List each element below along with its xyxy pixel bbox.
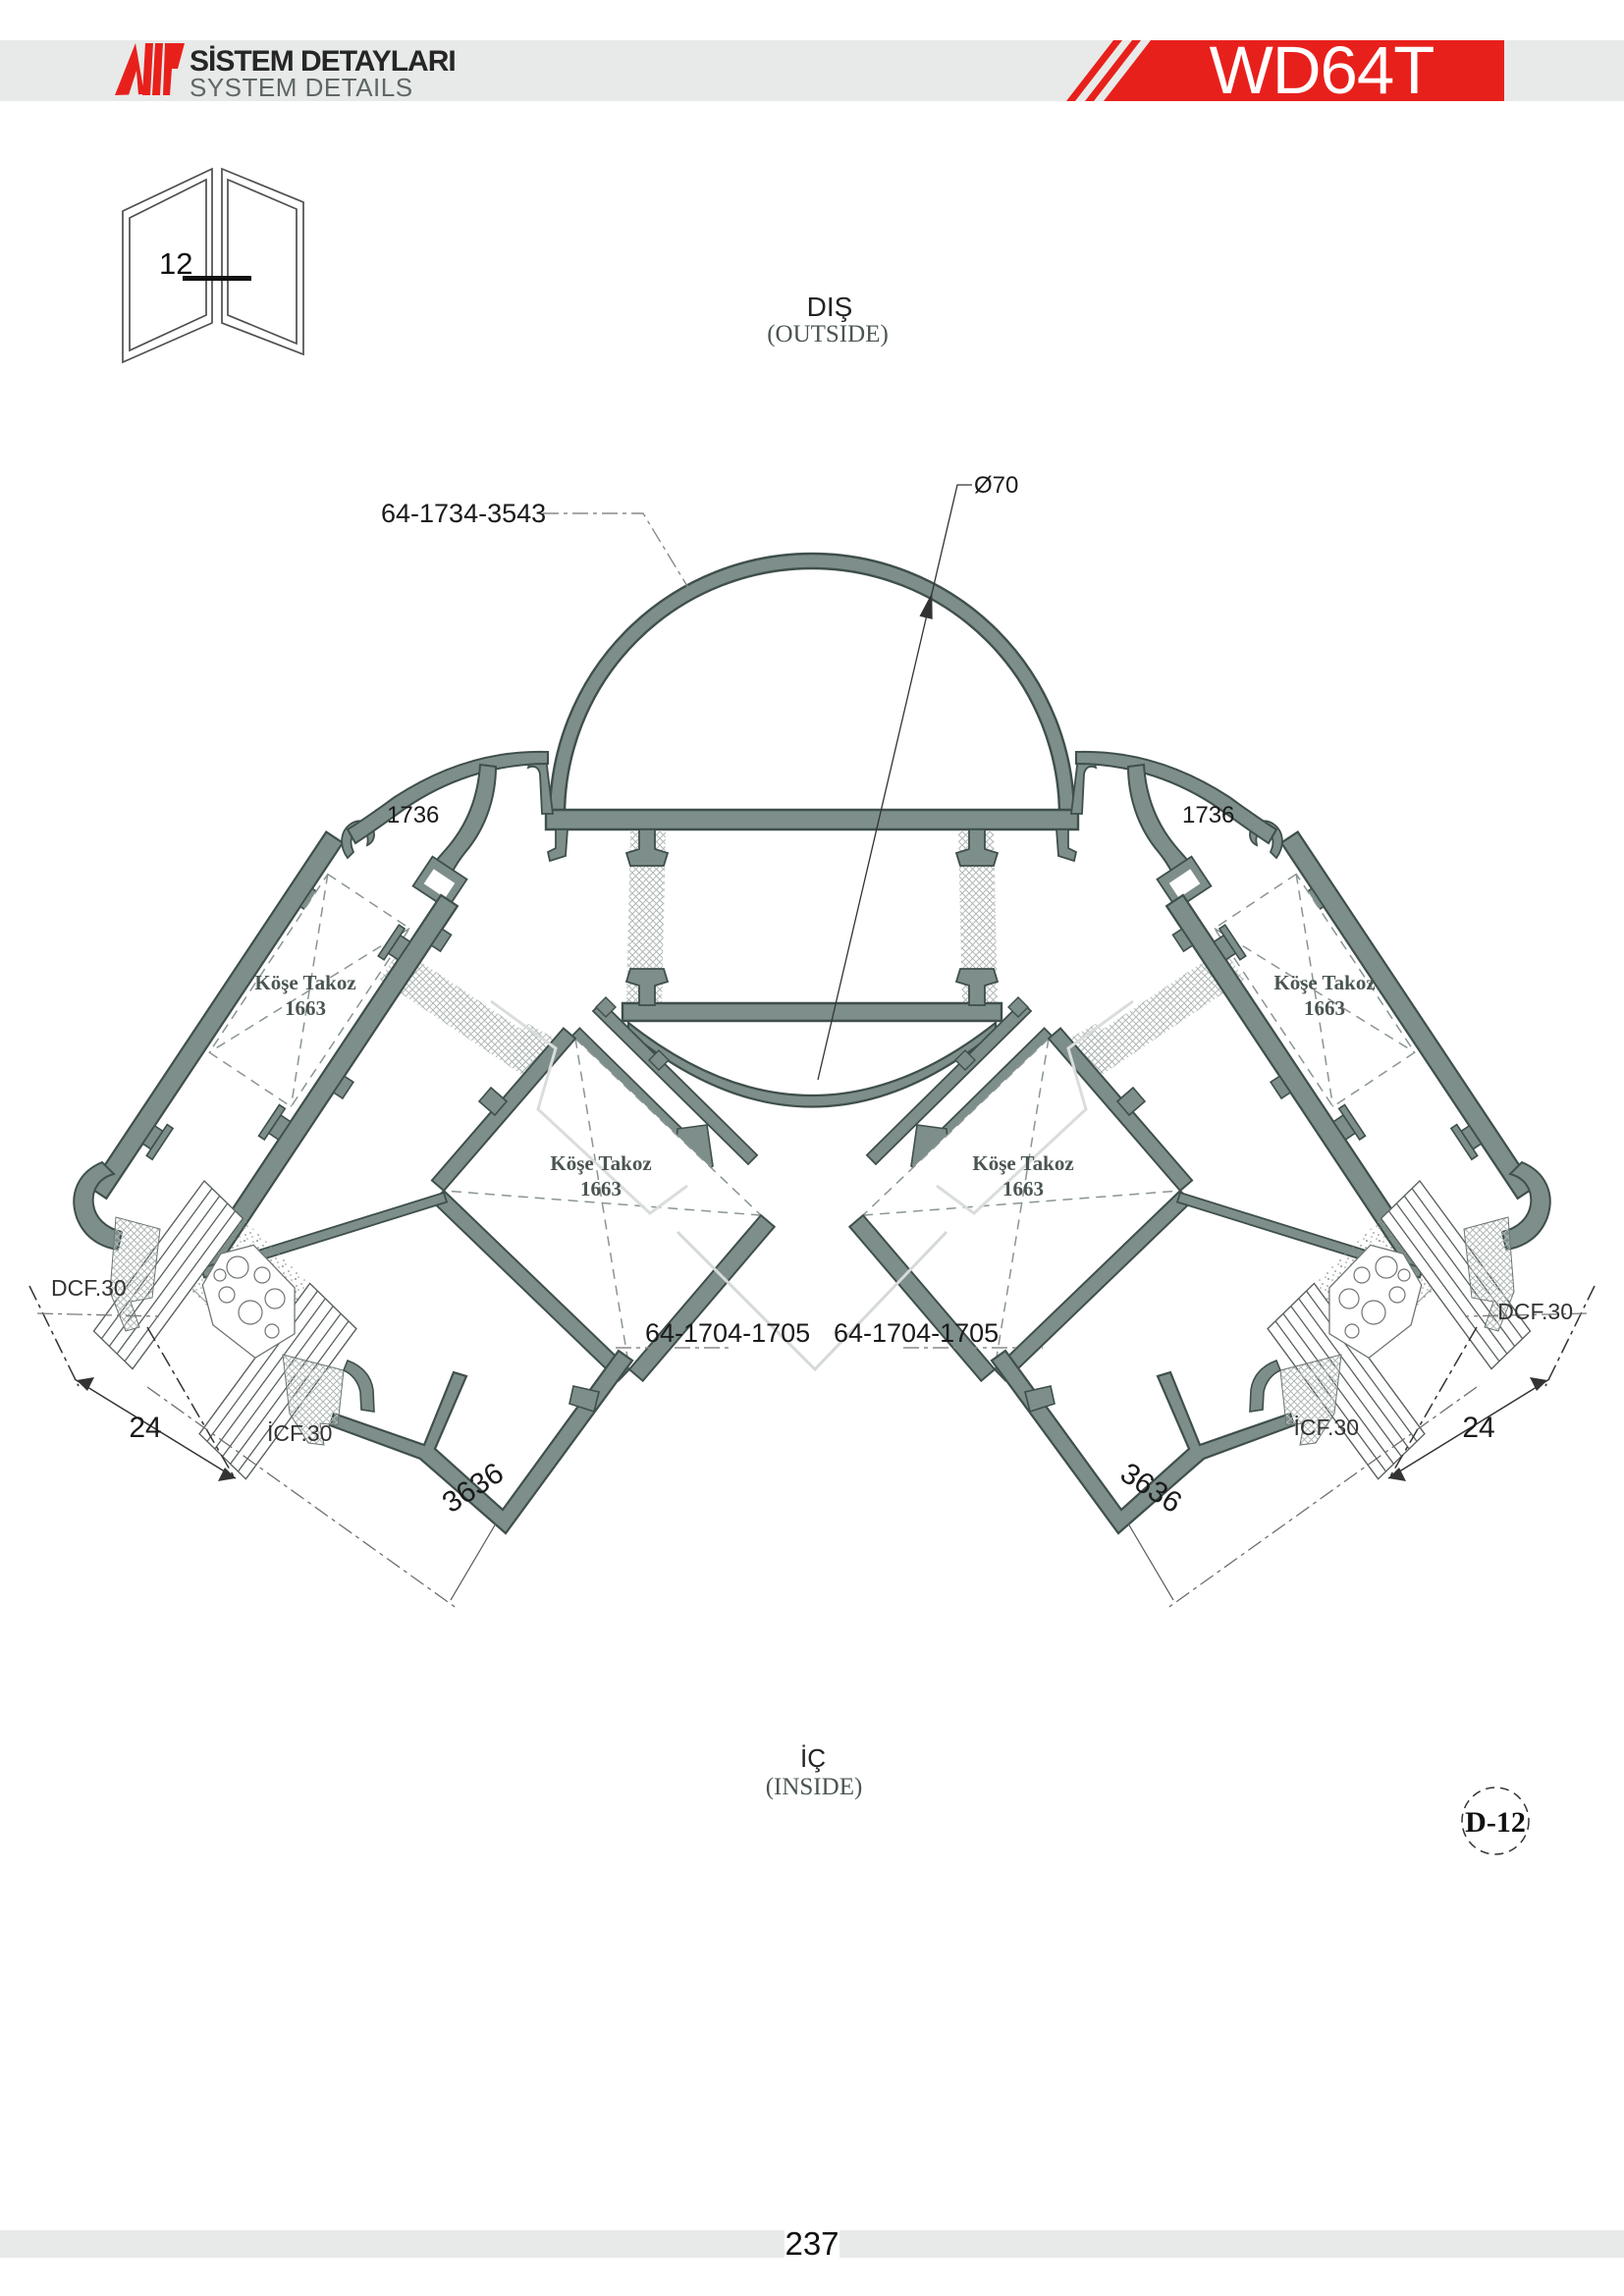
- svg-text:DCF.30: DCF.30: [51, 1275, 127, 1301]
- svg-text:WD64T: WD64T: [1210, 32, 1435, 108]
- svg-text:12: 12: [159, 246, 192, 281]
- svg-text:İCF.30: İCF.30: [1294, 1415, 1359, 1440]
- svg-text:DIŞ: DIŞ: [807, 292, 853, 322]
- svg-text:237: 237: [785, 2225, 839, 2262]
- svg-text:(OUTSIDE): (OUTSIDE): [767, 321, 889, 347]
- svg-text:64-1704-1705: 64-1704-1705: [645, 1318, 810, 1348]
- svg-text:(INSIDE): (INSIDE): [766, 1774, 863, 1800]
- svg-text:64-1704-1705: 64-1704-1705: [834, 1318, 999, 1348]
- svg-text:SYSTEM DETAILS: SYSTEM DETAILS: [189, 73, 413, 102]
- svg-text:İÇ: İÇ: [800, 1743, 826, 1773]
- svg-text:D-12: D-12: [1465, 1806, 1526, 1839]
- svg-text:İCF.30: İCF.30: [267, 1420, 332, 1446]
- svg-text:DCF.30: DCF.30: [1497, 1299, 1573, 1324]
- svg-text:Ø70: Ø70: [974, 472, 1018, 499]
- svg-text:1736: 1736: [387, 802, 439, 828]
- svg-text:24: 24: [1462, 1412, 1494, 1444]
- svg-text:24: 24: [129, 1412, 161, 1444]
- svg-text:64-1734-3543: 64-1734-3543: [381, 499, 546, 528]
- svg-text:1736: 1736: [1182, 802, 1234, 828]
